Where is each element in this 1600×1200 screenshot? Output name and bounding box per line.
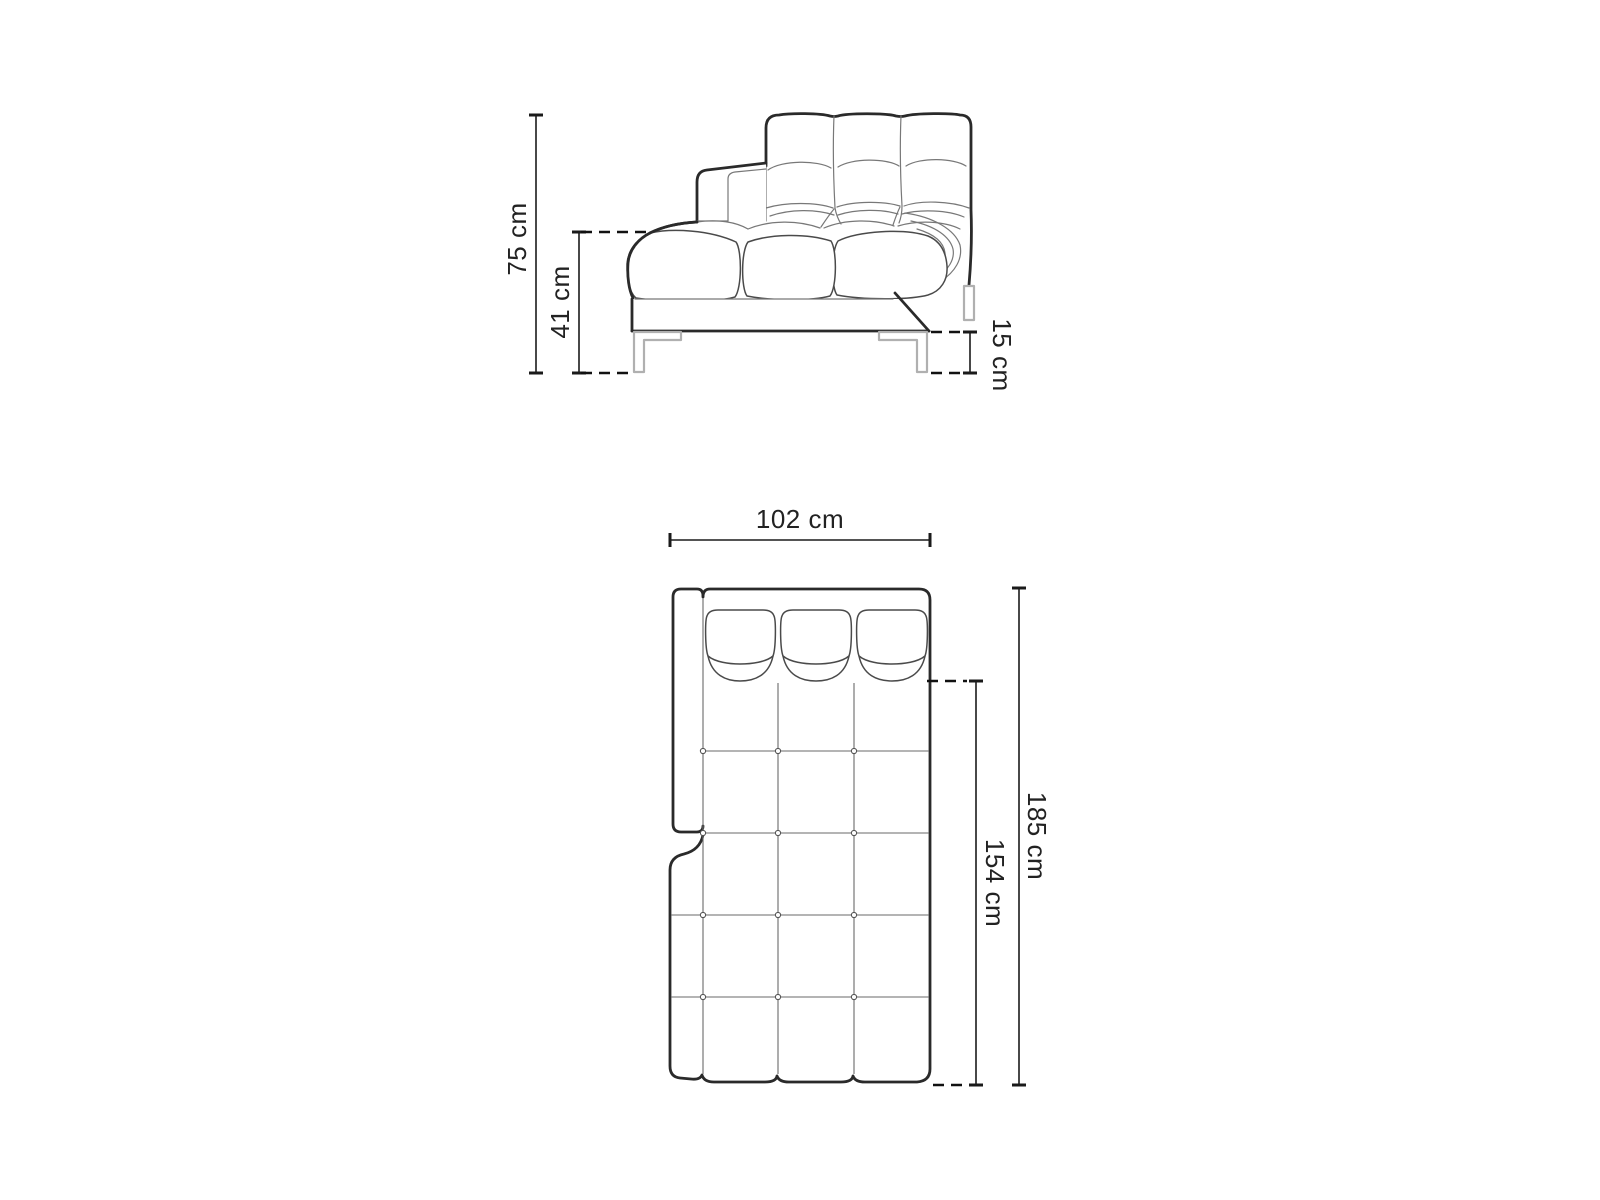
seat-cushion-middle bbox=[743, 235, 836, 299]
dimension-seat-depth: 154 cm bbox=[927, 681, 1010, 1085]
seat-depth-label: 154 cm bbox=[980, 839, 1010, 927]
backrest-cushion bbox=[857, 610, 928, 664]
backrest-cushion bbox=[781, 610, 852, 664]
dimension-width: 102 cm bbox=[670, 504, 930, 547]
diagram-canvas: 75 cm 41 cm 15 cm bbox=[0, 0, 1600, 1200]
side-view: 75 cm 41 cm 15 cm bbox=[502, 114, 1017, 392]
leg-front-left bbox=[634, 332, 681, 372]
seat-height-label: 41 cm bbox=[545, 265, 575, 338]
seat-cushion-right bbox=[833, 231, 947, 298]
overall-height-label: 75 cm bbox=[502, 202, 532, 275]
armrest bbox=[697, 164, 766, 235]
seat-cushion-left bbox=[627, 230, 740, 301]
dimension-leg-height: 15 cm bbox=[931, 318, 1017, 391]
leg-front-right bbox=[879, 332, 927, 372]
backrest-cushion bbox=[706, 610, 776, 664]
base-platform bbox=[633, 299, 926, 331]
plan-view: 102 cm 185 cm 154 cm bbox=[670, 504, 1052, 1085]
overall-depth-label: 185 cm bbox=[1022, 792, 1052, 880]
dimension-overall-height: 75 cm bbox=[502, 115, 543, 373]
plan-armrest bbox=[673, 589, 703, 832]
leg-rear bbox=[964, 286, 974, 320]
side-view-sofa-drawing bbox=[627, 114, 974, 372]
dimension-overall-depth: 185 cm bbox=[1012, 588, 1052, 1085]
width-label: 102 cm bbox=[756, 504, 844, 534]
sofa-dimension-diagram: 75 cm 41 cm 15 cm bbox=[0, 0, 1600, 1200]
plan-view-sofa-drawing bbox=[670, 589, 930, 1082]
leg-height-label: 15 cm bbox=[987, 318, 1017, 391]
